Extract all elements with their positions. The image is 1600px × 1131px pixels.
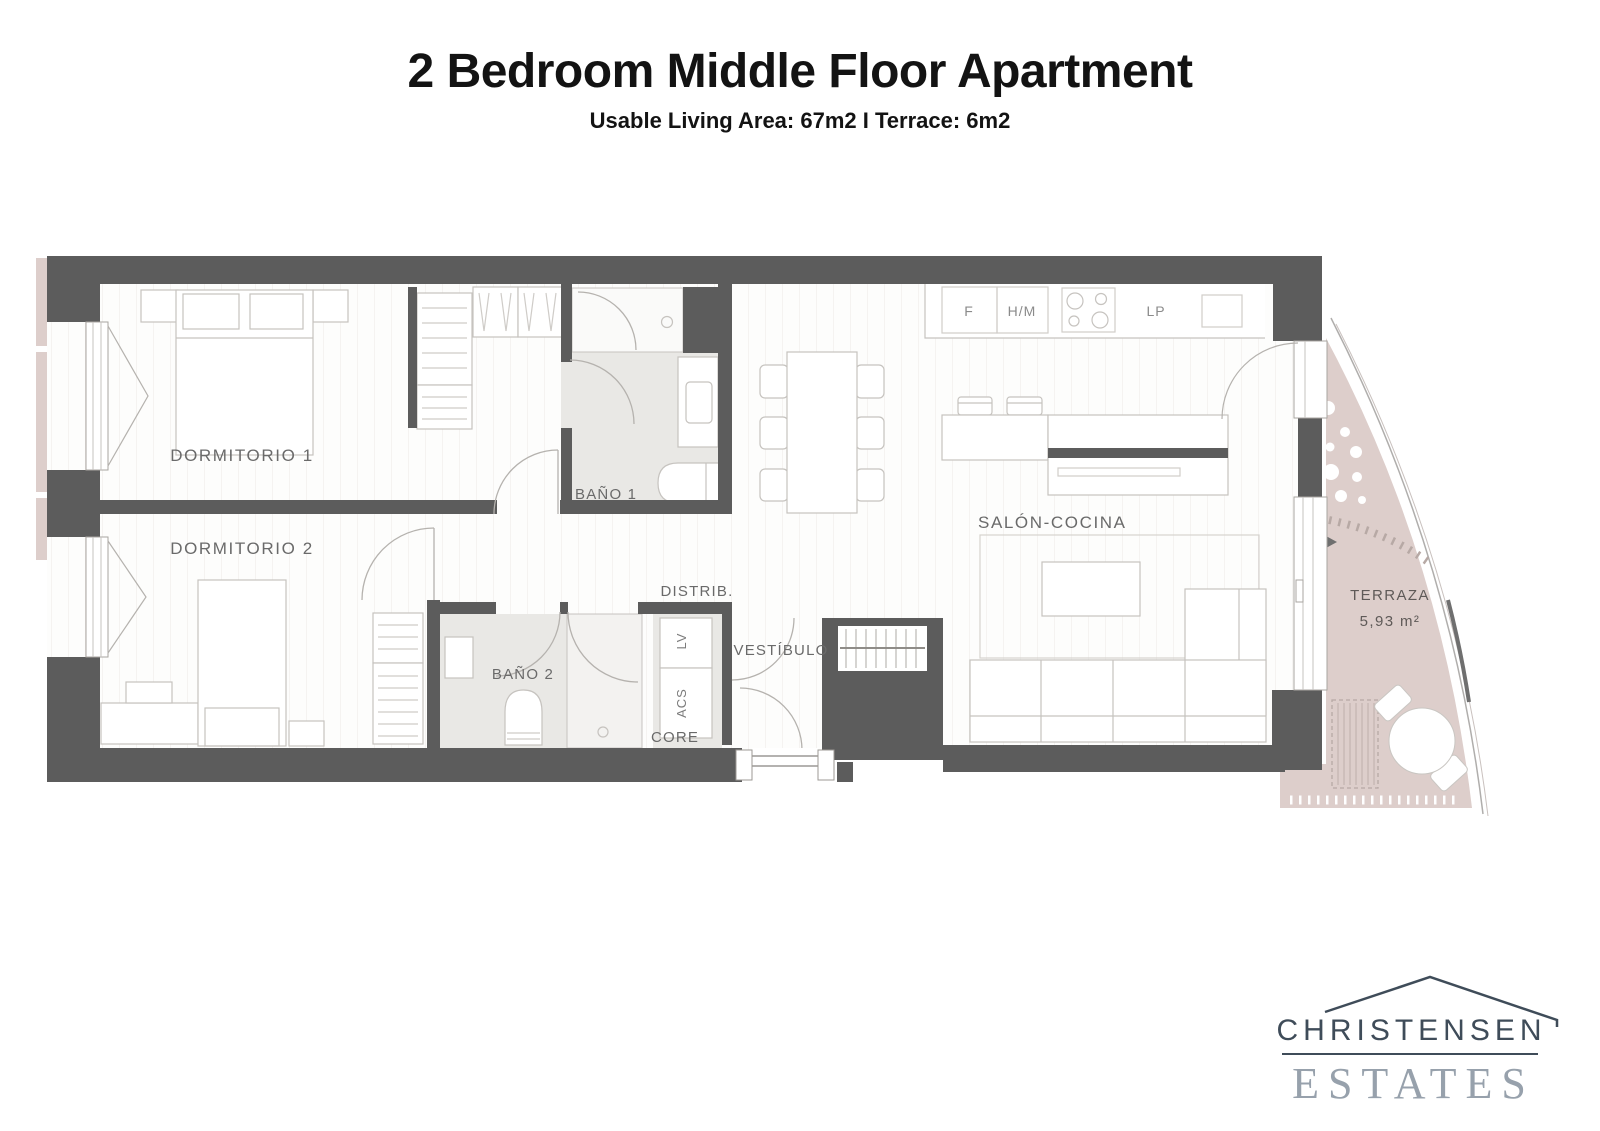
coffee-table	[1042, 562, 1140, 616]
wall-entry-block	[822, 677, 943, 760]
wall-bath2-north-post	[560, 602, 568, 614]
dining-chair	[856, 469, 884, 501]
wall-bath1-west-upper	[561, 284, 572, 362]
hall-closet	[822, 618, 943, 677]
adjacent-terrace-strips	[36, 258, 48, 560]
terrace-area-label: 5,93 m²	[1360, 613, 1421, 630]
sofa	[970, 660, 1266, 742]
label-dormitorio2: DORMITORIO 2	[170, 539, 314, 558]
label-fridge: F	[964, 303, 974, 319]
bathtub	[658, 463, 722, 503]
wall-top	[47, 256, 1322, 284]
pillow	[183, 294, 239, 329]
dining-table	[787, 352, 857, 513]
wall-right-mid	[1298, 418, 1322, 497]
wall-right-top	[1273, 284, 1322, 341]
toilet	[505, 690, 542, 745]
nightstand	[313, 290, 348, 322]
monitor	[126, 682, 172, 703]
bath2-shower	[567, 614, 642, 748]
wall-bedrooms-divider	[100, 500, 497, 514]
label-bano2: BAÑO 2	[492, 666, 554, 683]
terrace-label: TERRAZA	[1350, 587, 1430, 604]
label-bano1: BAÑO 1	[575, 486, 637, 503]
logo-word2: ESTATES	[1244, 1058, 1574, 1109]
dining-chair	[760, 365, 788, 398]
logo-divider	[1282, 1053, 1538, 1055]
nightstand	[289, 721, 324, 746]
counter-dark-band	[1048, 448, 1228, 458]
label-lv: LV	[674, 633, 689, 650]
single-bed	[198, 580, 286, 746]
wall-bottom-left	[47, 748, 742, 782]
nightstand	[141, 290, 178, 322]
dining-chair	[760, 469, 788, 501]
label-salon-cocina: SALÓN-COCINA	[978, 513, 1127, 532]
bar-stool	[958, 397, 992, 415]
wardrobe-drawers	[417, 385, 472, 429]
label-vestibulo: VESTÍBULO	[734, 642, 829, 659]
label-dishwasher: LP	[1146, 303, 1165, 319]
wall-corner-br	[1272, 690, 1322, 770]
desk	[101, 703, 198, 744]
wardrobe-drawers	[417, 293, 472, 385]
agency-logo: CHRISTENSEN ESTATES	[1244, 952, 1574, 1122]
wall-bath2-north-a	[427, 602, 496, 614]
wardrobe-shelves	[373, 613, 423, 663]
window-handle	[1296, 580, 1303, 602]
wall-bedroom2-east	[427, 600, 440, 748]
dining-chair	[760, 417, 788, 449]
window-living	[1294, 497, 1327, 690]
label-core: CORE	[651, 729, 699, 746]
dining-chair	[856, 417, 884, 449]
wall-dressing-stub	[408, 287, 417, 428]
wall-left-mid	[47, 470, 100, 537]
label-dormitorio1: DORMITORIO 1	[170, 446, 314, 465]
dining-set	[760, 352, 884, 513]
entrance-door	[736, 748, 834, 782]
wall-bath1-duct	[683, 287, 718, 353]
label-oven-micro: H/M	[1008, 303, 1037, 319]
wardrobe-shelves	[373, 663, 423, 744]
wall-entry-stub	[837, 762, 853, 782]
wall-bottom-living	[943, 745, 1285, 772]
bar-stool	[1007, 397, 1042, 415]
floorplan-page: 2 Bedroom Middle Floor Apartment Usable …	[0, 0, 1600, 1131]
wall-bath1-east	[718, 284, 732, 514]
label-distrib: DISTRIB.	[661, 583, 734, 600]
pillow	[250, 294, 303, 329]
wall-corner-tl	[47, 256, 100, 322]
logo-name: CHRISTENSEN	[1244, 1014, 1574, 1048]
dining-chair	[856, 365, 884, 398]
vanity	[445, 637, 473, 678]
kitchen-island	[942, 415, 1048, 460]
label-acs: ACS	[674, 688, 689, 718]
wall-vestibule-west	[722, 614, 732, 745]
kitchen-counter	[925, 284, 1265, 338]
wall-core-north	[638, 602, 732, 614]
